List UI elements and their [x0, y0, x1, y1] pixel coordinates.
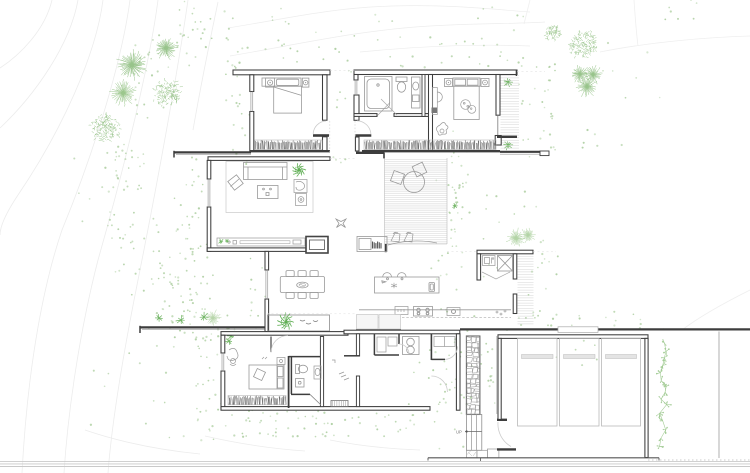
svg-text:UP: UP — [456, 430, 462, 435]
